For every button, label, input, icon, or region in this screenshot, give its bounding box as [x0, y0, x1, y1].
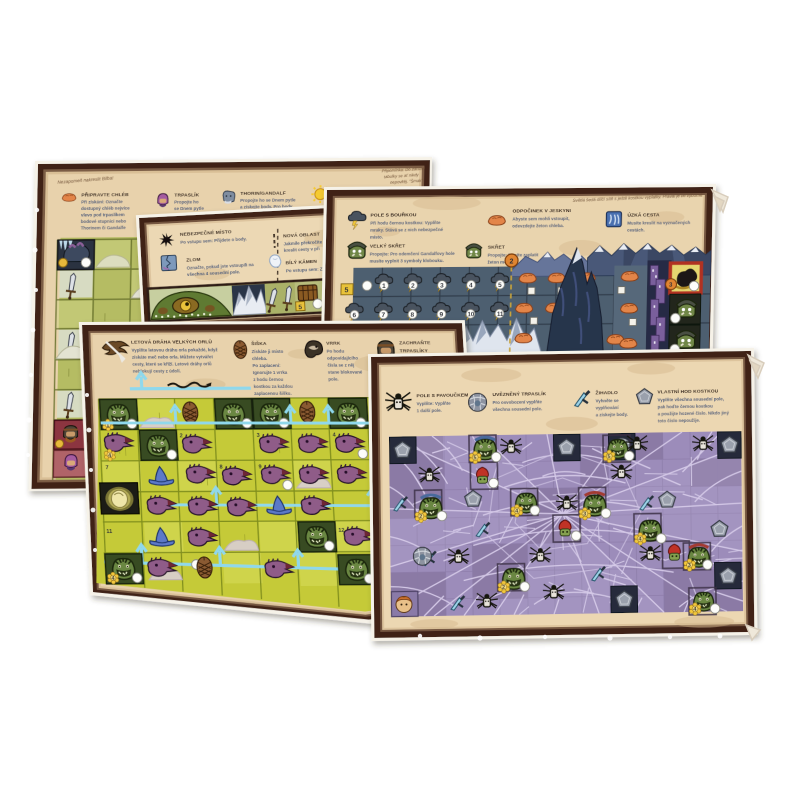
- svg-text:2: 2: [180, 434, 183, 440]
- svg-text:6: 6: [352, 312, 356, 319]
- svg-text:čísla se z něj: čísla se z něj: [327, 363, 354, 368]
- svg-text:5: 5: [473, 456, 476, 462]
- svg-text:toto číslo nepoužije.: toto číslo nepoužije.: [658, 418, 700, 424]
- svg-text:1: 1: [382, 283, 386, 290]
- svg-text:Po hodu: Po hodu: [327, 349, 345, 354]
- svg-text:9: 9: [439, 312, 443, 319]
- svg-text:mraky. Stává se z nich nebezpe: mraky. Stává se z nich nebezpečné: [370, 227, 444, 233]
- svg-text:7: 7: [381, 312, 385, 319]
- svg-text:kostkou za každou: kostkou za každou: [254, 384, 294, 389]
- svg-text:11: 11: [497, 312, 504, 318]
- svg-text:10: 10: [467, 312, 474, 318]
- svg-text:2: 2: [419, 514, 422, 520]
- svg-text:Při hodu černou kostkou: Vyplň: Při hodu černou kostkou: Vyplňte: [370, 220, 441, 226]
- svg-text:3: 3: [688, 563, 691, 569]
- svg-text:5: 5: [607, 454, 610, 460]
- svg-text:místo.: místo.: [370, 235, 383, 240]
- svg-text:zaplacenou šišku.: zaplacenou šišku.: [254, 391, 292, 396]
- svg-text:2: 2: [411, 283, 415, 290]
- svg-text:odevzdejte žeton chleba.: odevzdejte žeton chleba.: [512, 223, 564, 228]
- svg-text:Ignorujte 1 vrrka: Ignorujte 1 vrrka: [253, 370, 288, 375]
- svg-text:Propojte ho: Propojte ho: [174, 199, 199, 204]
- svg-text:9: 9: [258, 464, 261, 470]
- svg-text:získáte meč nebo orla. Můžete: získáte meč nebo orla. Můžete vytvářet: [132, 354, 214, 359]
- svg-text:Propojte: Pro odemčení Gandalf: Propojte: Pro odemčení Gandalfovy hole: [370, 251, 456, 257]
- svg-text:Abyste sem mohli vstoupit,: Abyste sem mohli vstoupit,: [512, 216, 569, 221]
- svg-text:Vyhněte se: Vyhněte se: [596, 398, 620, 403]
- svg-text:Získáte ji místo: Získáte ji místo: [252, 349, 284, 354]
- svg-text:8: 8: [410, 312, 414, 319]
- svg-text:4: 4: [469, 282, 473, 289]
- svg-text:dostupný chléb nejvíce: dostupný chléb nejvíce: [81, 206, 130, 211]
- svg-text:Propojte ho se Dnem pytle: Propojte ho se Dnem pytle: [240, 197, 296, 203]
- svg-text:5: 5: [498, 282, 502, 289]
- svg-text:2: 2: [509, 258, 513, 265]
- svg-text:chleba.: chleba.: [252, 356, 267, 361]
- svg-text:se Dnem pytle: se Dnem pytle: [174, 206, 204, 211]
- svg-text:ZLOM: ZLOM: [186, 257, 201, 264]
- svg-text:7: 7: [105, 465, 108, 471]
- svg-text:VRRK: VRRK: [326, 341, 341, 347]
- svg-text:Thorinem či Gandalfe: Thorinem či Gandalfe: [81, 225, 127, 230]
- svg-text:Vyplňte: Vyplňte: Vyplňte: Vyplňte: [417, 401, 452, 407]
- svg-text:musíte vyplnit 3 symboly klobo: musíte vyplnit 3 symboly klobouku.: [370, 258, 444, 264]
- svg-text:11: 11: [106, 529, 112, 535]
- svg-text:5: 5: [344, 287, 348, 294]
- svg-text:a získejte body.: a získejte body.: [596, 412, 628, 418]
- svg-text:3: 3: [583, 512, 586, 518]
- svg-text:všechna sousední pole.: všechna sousední pole.: [493, 406, 543, 412]
- svg-text:Po zaplacení:: Po zaplacení:: [252, 363, 281, 368]
- svg-text:8: 8: [219, 464, 222, 470]
- svg-text:bodové stupnici nebo: bodové stupnici nebo: [81, 219, 127, 224]
- svg-text:1 další pole.: 1 další pole.: [417, 408, 442, 413]
- svg-text:vyplňování: vyplňování: [596, 405, 620, 410]
- svg-text:vlevo pod trpaslíkem: vlevo pod trpaslíkem: [81, 212, 125, 217]
- svg-text:z hodu černou: z hodu černou: [253, 377, 284, 382]
- svg-text:cestách.: cestách.: [627, 227, 645, 232]
- svg-text:odpovídajícího: odpovídajícího: [327, 356, 359, 361]
- svg-text:pole.: pole.: [328, 377, 339, 382]
- svg-text:3: 3: [257, 433, 260, 439]
- svg-text:cesty, které se kříží. Letové: cesty, které se kříží. Letové dráhy orlů: [132, 361, 212, 366]
- svg-text:pak hoďte černou kostkou: pak hoďte černou kostkou: [658, 404, 713, 410]
- svg-text:2: 2: [502, 585, 505, 591]
- svg-text:Pro osvobození vyplňte: Pro osvobození vyplňte: [493, 399, 543, 405]
- svg-text:stane blokované: stane blokované: [328, 370, 363, 375]
- svg-text:Musíte kreslit na vyznačených: Musíte kreslit na vyznačených: [627, 220, 690, 226]
- svg-text:THORIN/GANDALF: THORIN/GANDALF: [240, 191, 286, 197]
- svg-text:Vyplňte letovou dráhu orla pok: Vyplňte letovou dráhu orla pokaždé, když: [131, 347, 218, 352]
- svg-text:Vyplňte všechna sousední pole,: Vyplňte všechna sousední pole,: [658, 396, 725, 402]
- svg-text:3: 3: [440, 283, 444, 290]
- svg-text:Při získání: Označte: Při získání: Označte: [81, 199, 123, 204]
